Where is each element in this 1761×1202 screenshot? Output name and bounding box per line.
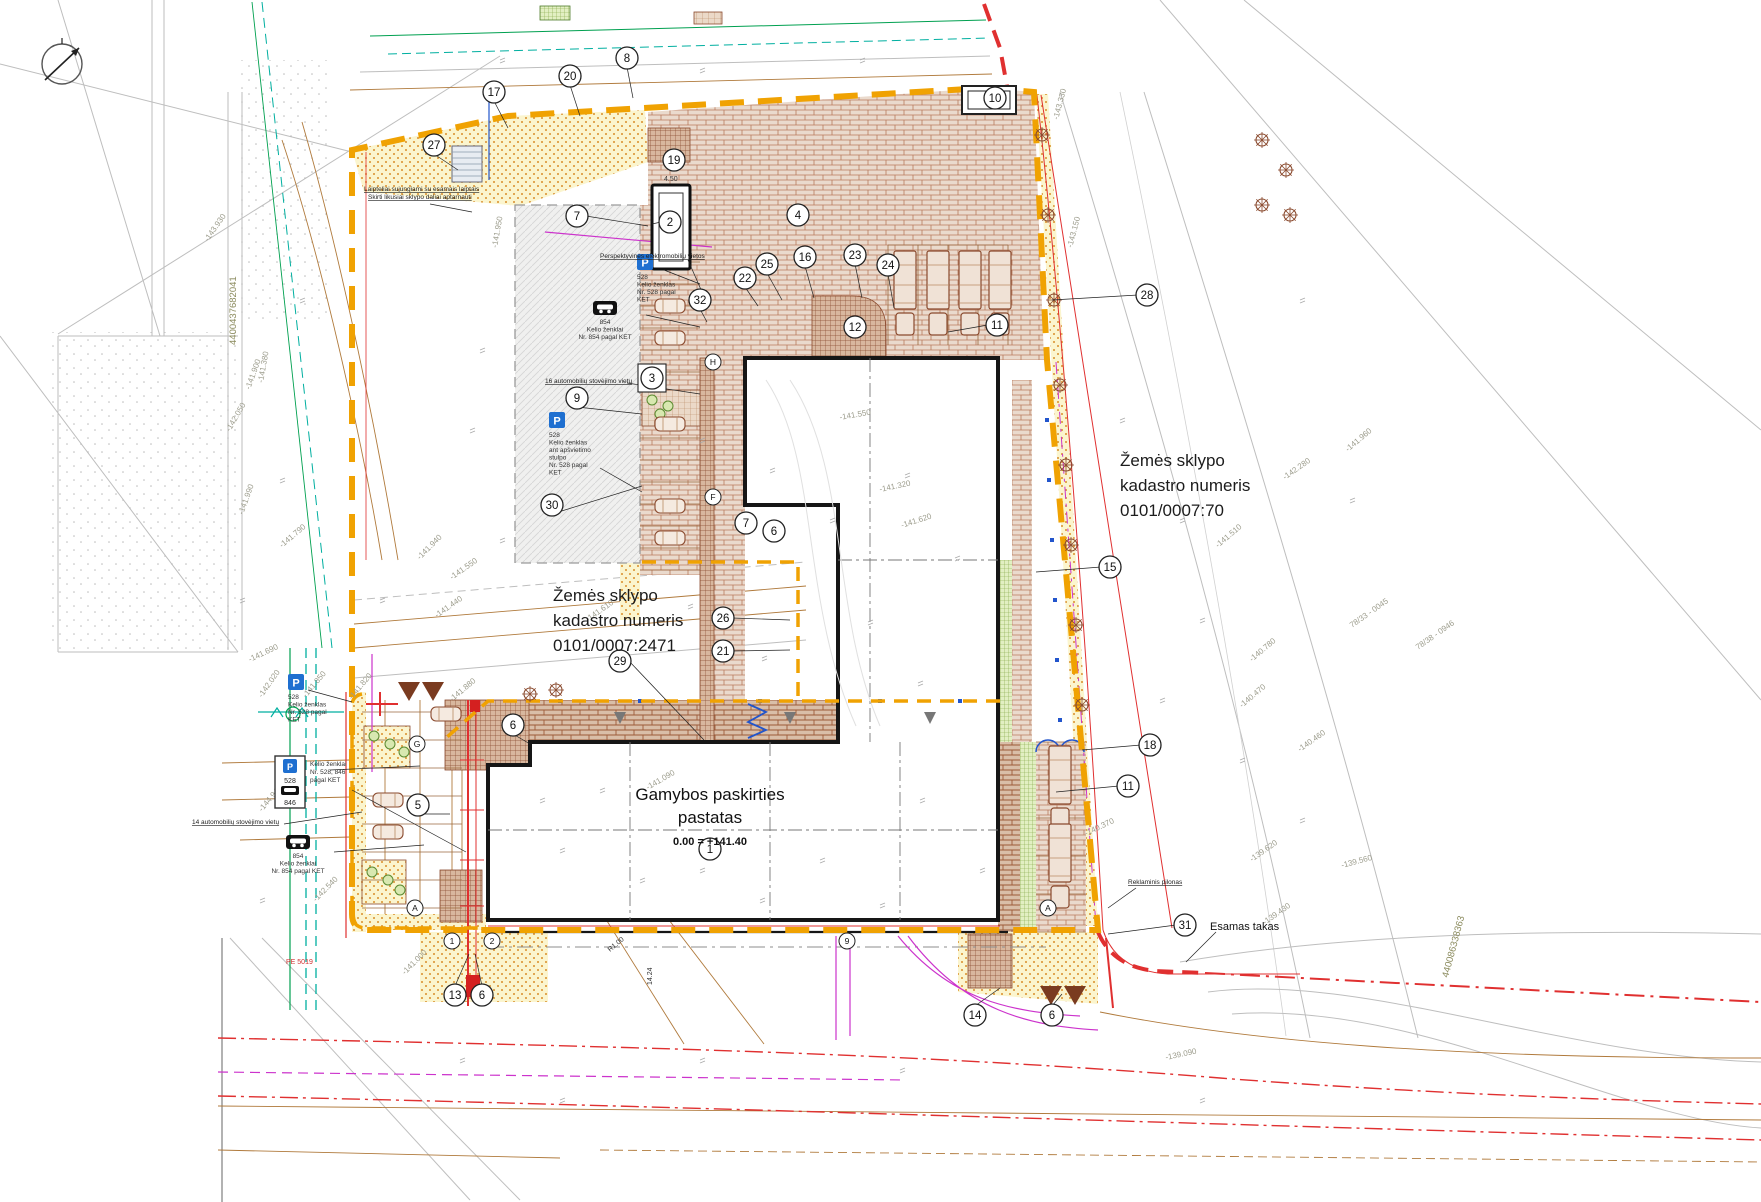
car-icon [655, 499, 685, 513]
site-plan-svg: -141.550-141.440-141.610-142.050-141.990… [0, 0, 1761, 1202]
topo-label: -142.020 [256, 668, 282, 699]
callout-26: 26 [712, 607, 734, 629]
callout-17: 17 [483, 81, 505, 103]
axis-bubble-A: A [1040, 900, 1056, 916]
tick-mark [470, 428, 475, 433]
building-name-line2: pastatas [580, 806, 840, 829]
axis-bubble-F: F [705, 489, 721, 505]
svg-text:16: 16 [799, 252, 812, 264]
svg-text:26: 26 [717, 613, 730, 625]
sign-text: Kelio ženklas [288, 702, 327, 709]
green-strip-east [1020, 742, 1036, 932]
car-icon [655, 331, 685, 345]
callout-14: 14 [964, 1004, 986, 1026]
leader-line [430, 204, 472, 212]
car-icon [655, 417, 685, 431]
svg-text:6: 6 [479, 990, 485, 1002]
svg-text:22: 22 [739, 273, 752, 285]
leader-line [1108, 888, 1136, 908]
note-label: 16 automobilių stovėjimo vietų [545, 378, 632, 385]
svg-text:10: 10 [989, 93, 1002, 105]
topo-label: -141.790 [278, 522, 308, 550]
svg-text:P: P [292, 678, 299, 690]
tick-mark [1300, 818, 1305, 823]
tick-mark [688, 604, 693, 609]
svg-text:6: 6 [510, 720, 516, 732]
svg-text:A: A [1045, 903, 1051, 913]
svg-text:15: 15 [1104, 562, 1117, 574]
callout-20: 20 [559, 65, 581, 87]
svg-text:P: P [287, 762, 293, 772]
tick-mark [900, 1068, 905, 1073]
svg-text:19: 19 [668, 155, 681, 167]
red-entrance-mark [470, 700, 480, 712]
svg-text:18: 18 [1144, 740, 1157, 752]
topo-label: -142.280 [1281, 456, 1312, 482]
svg-text:21: 21 [717, 646, 730, 658]
svg-text:14: 14 [969, 1010, 982, 1022]
parcel-label-right: Žemės sklypo kadastro numeris 0101/0007:… [1120, 448, 1250, 523]
sign-text: Nr. 528 pagal [637, 289, 676, 296]
svg-text:25: 25 [761, 259, 774, 271]
callout-25: 25 [756, 253, 778, 275]
sign-text: stulpo [549, 455, 567, 462]
note-label: Reklaminis pilonas [1128, 879, 1183, 886]
building-name-line1: Gamybos paskirties [580, 783, 840, 806]
sign-text: Nr. 854 pagal KET [578, 334, 631, 341]
parcel-label-center: Žemės sklypo kadastro numeris 0101/0007:… [553, 583, 683, 658]
parking-sign: P528846Kelio ženklaiNr. 528, 846pagal KE… [275, 756, 347, 808]
callout-7: 7 [735, 512, 757, 534]
svg-text:3: 3 [649, 373, 655, 385]
sign-text: Nr. 528 pagal [549, 462, 588, 469]
callout-24: 24 [877, 254, 899, 276]
tick-mark [700, 68, 705, 73]
tick-mark [1120, 418, 1125, 423]
shrub-icon [395, 885, 405, 895]
svg-text:17: 17 [488, 87, 501, 99]
callout-32: 32 [689, 289, 711, 311]
topo-label: -141.990 [236, 482, 255, 515]
car-icon [373, 793, 403, 807]
callout-19: 19 [663, 149, 685, 171]
tree-icon [1068, 617, 1084, 633]
svg-text:2: 2 [667, 217, 673, 229]
axis-bubble-G: G [409, 736, 425, 752]
svg-text:5: 5 [415, 800, 421, 812]
svg-text:27: 27 [428, 140, 441, 152]
sign-text: ant apšvietimo [549, 447, 591, 454]
callout-11: 11 [986, 314, 1008, 336]
leader-line [1108, 925, 1176, 934]
svg-text:4: 4 [795, 210, 802, 222]
callout-8: 8 [616, 47, 638, 69]
callout-10: 10 [984, 87, 1006, 109]
tick-mark [1350, 498, 1355, 503]
sign-text: Kelio ženklai [587, 327, 624, 334]
tick-mark [1300, 298, 1305, 303]
building-label: Gamybos paskirties pastatas 0.00 = +141.… [580, 783, 840, 854]
sign-text: pagal KET [310, 777, 340, 784]
leader-line [1186, 932, 1216, 962]
callout-2: 2 [659, 211, 681, 233]
svg-text:11: 11 [1122, 781, 1134, 793]
topo-label: -143.330 [1051, 87, 1068, 120]
axis-bubble-2: 2 [484, 933, 500, 949]
car-icon [655, 299, 685, 313]
callout-16: 16 [794, 246, 816, 268]
svg-text:G: G [414, 739, 421, 749]
topo-label: -140.780 [1248, 636, 1278, 664]
tree-icon [1278, 162, 1294, 178]
callout-9: 9 [566, 387, 588, 409]
topo-label: 78/38 - 0946 [1414, 618, 1456, 651]
sign-text: KET [288, 717, 301, 724]
topo-label: -141.550 [448, 556, 479, 582]
truck-icon [1049, 746, 1071, 830]
svg-text:528: 528 [284, 778, 296, 785]
sign-text: 528 [637, 274, 648, 281]
svg-text:8: 8 [624, 53, 630, 65]
svg-text:24: 24 [882, 260, 895, 272]
tick-mark [860, 58, 865, 63]
note-label: Perspektyvinės elektromobilių vietos [600, 253, 706, 260]
callout-22: 22 [734, 267, 756, 289]
shrub-icon [647, 395, 657, 405]
topo-label: -141.940 [415, 532, 444, 561]
svg-text:13: 13 [449, 990, 462, 1002]
parcel-center-line2: kadastro numeris [553, 608, 683, 633]
tick-mark [500, 538, 505, 543]
shrub-icon [369, 731, 379, 741]
shrub-icon [383, 875, 393, 885]
shrub-icon [663, 401, 673, 411]
parcel-center-line3: 0101/0007:2471 [553, 633, 683, 658]
svg-text:28: 28 [1141, 290, 1154, 302]
tick-mark [260, 898, 265, 903]
truck-icon [1049, 824, 1071, 908]
callout-18: 18 [1139, 734, 1161, 756]
topo-label: -139.090 [1165, 1046, 1198, 1061]
sign-text: Kelio ženklai [310, 761, 347, 768]
parcel-right-line1: Žemės sklypo [1120, 448, 1250, 473]
car-icon [373, 825, 403, 839]
tick-mark [830, 518, 835, 523]
note-label: 4.50 [664, 176, 678, 183]
tick-mark [1240, 758, 1245, 763]
svg-text:31: 31 [1179, 920, 1192, 932]
svg-text:7: 7 [574, 211, 580, 223]
callout-6: 6 [502, 714, 524, 736]
tree-icon [1254, 197, 1270, 213]
svg-text:11: 11 [991, 320, 1003, 332]
callout-13: 13 [444, 984, 466, 1006]
tree-icon [1034, 127, 1050, 143]
axis-bubble-1: 1 [444, 933, 460, 949]
callout-4: 4 [787, 204, 809, 226]
tick-mark [480, 348, 485, 353]
svg-text:H: H [710, 357, 716, 367]
grass-dots-region-2 [238, 60, 328, 320]
tick-mark [460, 1058, 465, 1063]
parcel-center-line1: Žemės sklypo [553, 583, 683, 608]
note-label: 14.24 [647, 967, 654, 985]
callout-3: 3 [638, 364, 666, 392]
sign-text: Nr. 854 pagal KET [271, 868, 324, 875]
parcel-right-line3: 0101/0007:70 [1120, 498, 1250, 523]
topo-label: -143.150 [1065, 215, 1082, 248]
sign-text: Nr. 528, 846 [310, 769, 346, 776]
grass-dots-region [50, 332, 238, 652]
leader-line [284, 812, 362, 824]
car-icon [431, 707, 461, 721]
topo-label: -140.460 [1296, 728, 1327, 754]
parcel-right-line2: kadastro numeris [1120, 473, 1250, 498]
leader-line [334, 845, 424, 852]
svg-text:2: 2 [490, 936, 495, 946]
topo-label: -141.690 [247, 642, 280, 664]
tick-mark [500, 58, 505, 63]
svg-text:9: 9 [845, 936, 850, 946]
axis-bubble-9: 9 [839, 933, 855, 949]
site-plan-drawing: { "drawing": { "type": "site-plan", "par… [0, 0, 1761, 1202]
topo-label: -141.380 [256, 350, 270, 383]
shrub-icon [399, 747, 409, 757]
sign-text: 854 [600, 319, 611, 326]
note-label: 14 automobilių stovėjimo vietų [192, 819, 279, 826]
callout-6: 6 [763, 520, 785, 542]
note-label: Laipteliai sujungiami su esamais laiptai… [364, 186, 480, 193]
callout-6: 6 [471, 984, 493, 1006]
sign-text: KET [637, 297, 650, 304]
tree-icon [1040, 207, 1056, 223]
tick-mark [560, 1098, 565, 1103]
sign-text: Nr. 528 pagal [288, 709, 327, 716]
truck-icon [959, 251, 981, 335]
svg-text:32: 32 [694, 295, 707, 307]
sign-text: 528 [549, 432, 560, 439]
tick-mark [1160, 698, 1165, 703]
shrub-icon [367, 867, 377, 877]
leader-line [1082, 745, 1141, 750]
sign-text: Kelio ženklas [637, 282, 676, 289]
shrub-icon [385, 739, 395, 749]
topo-label: -139.620 [1248, 838, 1279, 864]
topo-label: 78/33 - 0045 [1348, 596, 1390, 629]
tree-icon [1052, 377, 1068, 393]
tree-icon [1074, 697, 1090, 713]
svg-text:P: P [553, 416, 560, 428]
callout-30: 30 [541, 494, 563, 516]
note-label: PE 5019 [286, 959, 313, 966]
tree-icon [1058, 457, 1074, 473]
sign-text: Kelio ženklas [549, 440, 588, 447]
callout-5: 5 [407, 794, 429, 816]
tree-icon [1063, 537, 1079, 553]
axis-bubble-A: A [407, 900, 423, 916]
tick-mark [700, 1058, 705, 1063]
callout-12: 12 [844, 316, 866, 338]
svg-text:7: 7 [743, 518, 749, 530]
svg-text:20: 20 [564, 71, 577, 83]
callout-23: 23 [844, 244, 866, 266]
tick-mark [1200, 618, 1205, 623]
svg-text:23: 23 [849, 250, 862, 262]
sign-text: 854 [293, 853, 304, 860]
callout-11: 11 [1117, 775, 1139, 797]
svg-text:1: 1 [450, 936, 455, 946]
svg-text:12: 12 [849, 322, 862, 334]
topo-label: -143.930 [202, 212, 228, 243]
warning-triangle-icon [398, 682, 420, 701]
tick-mark [380, 598, 385, 603]
svg-text:A: A [412, 903, 418, 913]
sign-text: Kelio ženklai [280, 861, 317, 868]
car-icon [655, 531, 685, 545]
callout-21: 21 [712, 640, 734, 662]
callout-6: 6 [1041, 1004, 1063, 1026]
topo-label: -141.950 [490, 215, 504, 248]
callout-28: 28 [1136, 284, 1158, 306]
tree-icon [522, 686, 538, 702]
sign-text: KET [549, 470, 562, 477]
sign-text: 528 [288, 694, 299, 701]
leader-line [1052, 295, 1138, 300]
note-label: R1.00 [607, 936, 626, 953]
axis-bubble-H: H [705, 354, 721, 370]
tick-mark [762, 656, 767, 661]
svg-text:6: 6 [1049, 1010, 1055, 1022]
warning-triangle-icon [422, 682, 444, 701]
svg-text:F: F [710, 492, 715, 502]
svg-text:846: 846 [284, 800, 296, 807]
tree-icon [1282, 207, 1298, 223]
topo-label: -140.470 [1238, 682, 1268, 710]
esamas-takas-label: Esamas takas [1210, 921, 1279, 933]
topo-label: -141.960 [1344, 426, 1374, 454]
leader-line [627, 67, 633, 98]
walkway-strip [700, 358, 714, 742]
tree-icon [548, 682, 564, 698]
tick-mark [1200, 1098, 1205, 1103]
cadastral-id-label: 440086338363 [1440, 915, 1467, 979]
callout-7: 7 [566, 205, 588, 227]
callout-31: 31 [1174, 914, 1196, 936]
callout-15: 15 [1099, 556, 1121, 578]
topo-label: -141.510 [1214, 522, 1244, 550]
truck-icon [927, 251, 949, 335]
topo-label: -139.560 [1340, 853, 1373, 870]
callout-27: 27 [423, 134, 445, 156]
svg-text:6: 6 [771, 526, 777, 538]
svg-text:30: 30 [546, 500, 559, 512]
topo-label: -141.880 [448, 676, 478, 704]
cadastral-id-label: 4400437682041 [228, 276, 239, 345]
tick-mark [280, 478, 285, 483]
svg-text:9: 9 [574, 393, 580, 405]
note-label: Skirti likusiai sklypo daliai aptarnauti [368, 194, 472, 201]
tree-icon [1254, 132, 1270, 148]
building-level: 0.00 = +141.40 [580, 831, 840, 854]
